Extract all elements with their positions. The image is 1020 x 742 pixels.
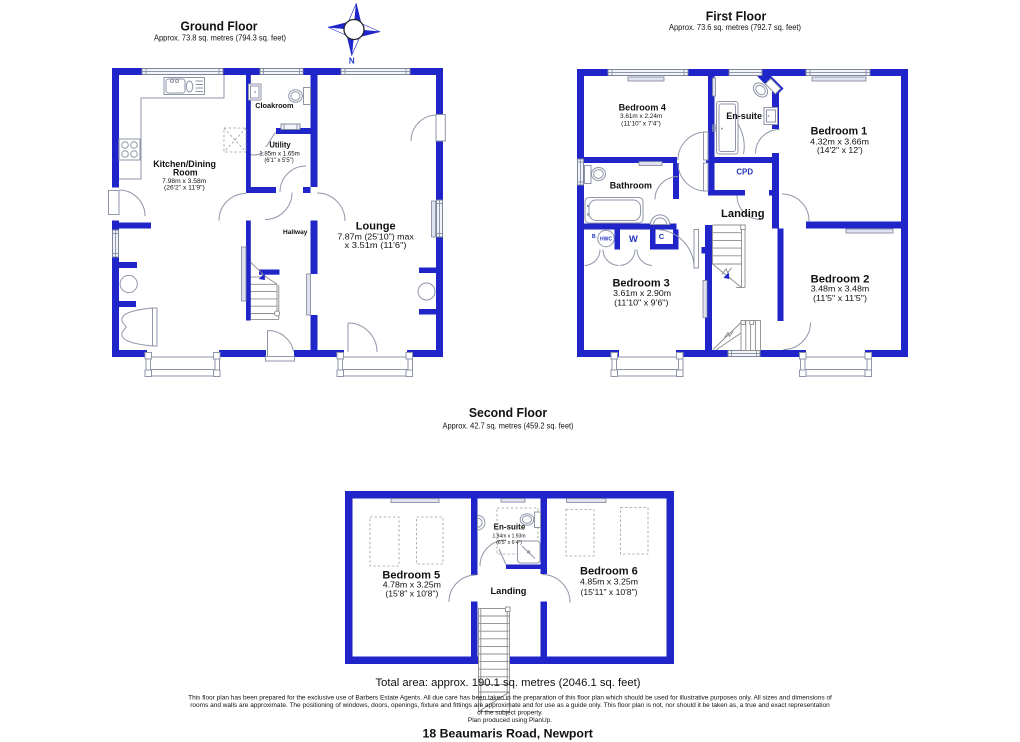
svg-text:W: W bbox=[629, 234, 638, 244]
svg-text:Landing: Landing bbox=[491, 586, 527, 596]
svg-text:En-suite: En-suite bbox=[494, 523, 526, 532]
svg-text:(11'10" x 7'4"): (11'10" x 7'4") bbox=[621, 121, 661, 128]
svg-text:(6'1" x 5'5"): (6'1" x 5'5") bbox=[264, 157, 293, 164]
svg-text:Landing: Landing bbox=[721, 208, 765, 220]
svg-text:Room: Room bbox=[173, 167, 198, 178]
svg-text:18 Beaumaris Road, Newport: 18 Beaumaris Road, Newport bbox=[423, 727, 593, 741]
svg-text:Second Floor: Second Floor bbox=[469, 406, 547, 420]
svg-text:Approx. 42.7 sq. metres (459.2: Approx. 42.7 sq. metres (459.2 sq. feet) bbox=[443, 422, 574, 431]
svg-text:Ground Floor: Ground Floor bbox=[181, 20, 258, 34]
svg-text:Bedroom 4: Bedroom 4 bbox=[619, 102, 667, 112]
svg-text:rooms and walls are approximat: rooms and walls are approximate. The pos… bbox=[190, 702, 830, 709]
svg-text:B: B bbox=[592, 234, 596, 240]
svg-text:of the subject property.: of the subject property. bbox=[477, 710, 543, 717]
svg-text:Hallway: Hallway bbox=[283, 229, 308, 236]
svg-text:First Floor: First Floor bbox=[706, 10, 767, 24]
svg-text:(26'2" x 11'9"): (26'2" x 11'9") bbox=[164, 184, 205, 191]
svg-text:4.85m x 3.25m: 4.85m x 3.25m bbox=[580, 576, 638, 586]
svg-text:(15'8" x 10'8"): (15'8" x 10'8") bbox=[385, 588, 438, 598]
svg-text:CPD: CPD bbox=[736, 168, 753, 177]
svg-text:x 3.51m (11'6"): x 3.51m (11'6") bbox=[345, 240, 407, 250]
svg-text:HWC: HWC bbox=[600, 236, 612, 242]
svg-text:C: C bbox=[659, 232, 665, 241]
svg-text:3.48m x 3.48m: 3.48m x 3.48m bbox=[811, 283, 870, 293]
svg-text:3.61m x 2.90m: 3.61m x 2.90m bbox=[613, 288, 671, 298]
svg-text:Bathroom: Bathroom bbox=[610, 181, 652, 191]
svg-text:3.61m x 2.24m: 3.61m x 2.24m bbox=[620, 113, 662, 120]
svg-text:(15'11" x 10'8"): (15'11" x 10'8") bbox=[581, 587, 638, 597]
svg-text:Cloakroom: Cloakroom bbox=[255, 101, 294, 110]
svg-text:(11'10" x 9'6"): (11'10" x 9'6") bbox=[614, 298, 668, 308]
svg-text:(11'5" x 11'5"): (11'5" x 11'5") bbox=[813, 293, 867, 303]
svg-text:1.94m x 1.93m: 1.94m x 1.93m bbox=[493, 533, 527, 539]
svg-text:(14'2" x 12'): (14'2" x 12') bbox=[817, 145, 863, 155]
svg-text:N: N bbox=[349, 57, 355, 66]
svg-text:(6'5" x 6'4"): (6'5" x 6'4") bbox=[496, 540, 522, 546]
svg-text:Utility: Utility bbox=[269, 140, 291, 149]
svg-text:En-suite: En-suite bbox=[726, 111, 762, 121]
svg-text:Approx. 73.6 sq. metres (792.7: Approx. 73.6 sq. metres (792.7 sq. feet) bbox=[669, 23, 801, 32]
svg-text:Plan produced using PlanUp.: Plan produced using PlanUp. bbox=[468, 717, 552, 724]
svg-text:Total area: approx. 190.1 sq.: Total area: approx. 190.1 sq. metres (20… bbox=[376, 677, 641, 689]
svg-text:Approx. 73.8 sq. metres (794.3: Approx. 73.8 sq. metres (794.3 sq. feet) bbox=[154, 33, 286, 42]
svg-text:This floor plan has been prepa: This floor plan has been prepared for th… bbox=[188, 694, 832, 701]
